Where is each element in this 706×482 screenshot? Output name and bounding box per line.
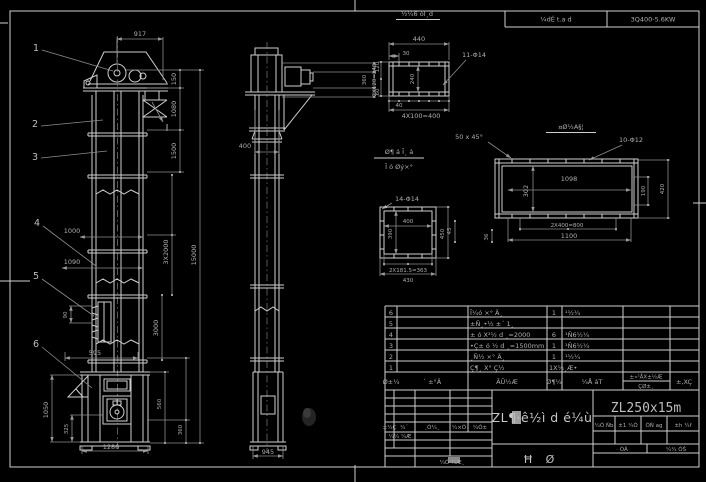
title-block: ±¼Ç ¼´ ¸Ò¼¸ ¼×Ó ¼Ó± ¼¼ ¼Æ ¼Ó ¼Æ¸ ZL¶·ê½ì…	[383, 390, 699, 467]
rev-h1: ±¼Ç	[383, 425, 397, 431]
row4-desc: ± ó X²½ d ¸=2000	[470, 331, 530, 339]
drawing-title: ZL¶·ê½ì d é¼ù	[492, 410, 593, 425]
dim-1000: 1000	[64, 227, 81, 235]
row6-material: ¹½¼	[565, 309, 581, 317]
row3-material: ¹Ñ6½¼	[565, 341, 590, 350]
dim-150: 150	[170, 73, 178, 85]
holes-10-12: 10-Φ12	[619, 136, 643, 144]
detail-channel-title: ½¼6 óĪ¸d	[401, 9, 433, 18]
screen-smudge	[302, 408, 316, 426]
dim-360-side: 360	[362, 74, 368, 85]
rev-h5: ¼Ó±	[473, 424, 488, 431]
front-view-dimensions: 917 150 1080 1500 15000 3X2000 3000 1000…	[42, 30, 204, 454]
dim-1080: 1080	[170, 101, 178, 118]
dim-945: 945	[262, 448, 274, 456]
header-material: ¼Å áT	[582, 377, 603, 386]
header-qty: Ø¶¼	[546, 378, 562, 386]
rev-h2: ¼´	[400, 425, 408, 431]
dim-2x120: 2X120=240	[372, 63, 378, 96]
rev-h3: ¸Ò¼¸	[424, 424, 439, 431]
header-weight-bottom: ÇØ±¸	[638, 383, 654, 390]
detail-plate-title: ¤Ø½A§¦	[558, 123, 583, 131]
inlet-note-line1: Ø¶ á Ī¸ á	[385, 147, 414, 156]
dim-430: 430	[403, 278, 414, 284]
info-c2: ±1 ¼Ò	[618, 422, 638, 429]
row4-material: ¹Ñ6½¼	[565, 330, 590, 339]
info-c4: ±h ¼f	[674, 423, 692, 429]
dim-40: 40	[396, 103, 403, 109]
dim-1090: 1090	[64, 258, 81, 266]
rev-row2: ¼Ó ¼Æ¸	[440, 459, 465, 466]
header-note-col: ±,XÇ	[676, 378, 692, 386]
row4-no: 4	[389, 331, 393, 339]
dim-440: 440	[413, 35, 425, 43]
dim-595: 595	[89, 349, 101, 357]
info-c1: ¼Ó Ñb	[594, 422, 614, 429]
dim-325: 325	[64, 423, 70, 434]
dim-190: 190	[641, 185, 647, 196]
dim-302: 302	[522, 185, 530, 197]
dim-1100: 1100	[561, 232, 578, 240]
front-view-elevator: I	[68, 36, 168, 452]
row6-qty: 1	[552, 309, 556, 317]
row5-desc: ±Ñ¸•½ ±´ 1¸	[470, 319, 514, 328]
dim-1050: 1050	[42, 402, 50, 419]
holes-14-14: 14-Φ14	[395, 195, 419, 203]
dim-400: 400	[239, 142, 251, 150]
detail-channel-flange: ½¼6 óĪ¸d 440 30 2X120=240 240 11-Φ14 40 …	[372, 9, 486, 120]
row4-qty: 6	[552, 331, 556, 339]
dim-450: 450	[440, 228, 446, 239]
inlet-note-line2: Ī ó Øý×°	[385, 162, 413, 171]
info-c3: ÓÑ ag	[645, 422, 662, 429]
dim-360: 360	[178, 424, 184, 435]
dim-fl-400: 400	[403, 219, 414, 225]
row1-no: 1	[389, 364, 393, 372]
balloon-callouts: 1 2 3 4 5 6	[32, 43, 113, 388]
row2-no: 2	[389, 353, 393, 361]
dim-36: 36	[484, 233, 490, 240]
dim-240: 240	[410, 73, 416, 84]
side-view-elevator	[245, 42, 315, 452]
balloon-5: 5	[33, 271, 39, 282]
balloon-2: 2	[32, 119, 38, 130]
top-header-strip: ¼dÊ t.a d 3Q400-5.6KW	[505, 11, 699, 27]
dim-3000: 3000	[152, 320, 160, 337]
dim-90: 90	[63, 311, 69, 318]
model-number: ZL250x15m	[611, 401, 682, 416]
dim-390: 390	[388, 228, 394, 239]
dim-4x100: 4X100=400	[402, 112, 441, 120]
row3-desc: •Ç± ó ½ d ¸=1500mm	[470, 342, 544, 350]
header-desc: ÃÛ½Æ	[496, 377, 518, 386]
row1-desc: Ç¶¸ X° Ç½	[470, 364, 505, 372]
cad-drawing-sheet: ¼dÊ t.a d 3Q400-5.6KW I	[0, 0, 706, 482]
row3-qty: 1	[552, 342, 556, 350]
header-note: ¼dÊ t.a d	[540, 15, 571, 24]
detail-square-flange: 14-Φ14 400 390 450 2X181.5=363 430	[380, 195, 450, 284]
dim-30: 30	[403, 51, 410, 57]
row5-no: 5	[389, 320, 393, 328]
balloon-6: 6	[33, 339, 39, 350]
section-mark: I	[166, 123, 169, 134]
dim-1286: 1286	[103, 443, 120, 451]
row6-desc: Ī¼ó ×° Ä¸	[470, 308, 503, 317]
row6-no: 6	[389, 309, 393, 317]
dim-15000: 15000	[190, 245, 198, 266]
balloon-3: 3	[32, 152, 38, 163]
dim-420: 420	[660, 183, 666, 194]
cad-canvas: ¼dÊ t.a d 3Q400-5.6KW I	[0, 0, 706, 482]
dim-917: 917	[134, 30, 146, 38]
row3-no: 3	[389, 342, 393, 350]
dim-1098: 1098	[561, 175, 578, 183]
info-s2: ¼¼ ÓŠ	[666, 446, 687, 453]
balloon-1: 1	[33, 43, 39, 54]
row2-desc: ¸Ñ½ ×° Ä¸	[470, 352, 505, 361]
stamp-right: Ø	[546, 453, 555, 466]
rev-row1: ¼¼ ¼Æ	[388, 434, 411, 440]
side-view-dimensions: 400 945 360 120 60	[239, 61, 381, 459]
rev-h4: ¼×Ó	[452, 424, 467, 431]
chamfer-note: 50 x 45°	[455, 133, 483, 141]
dim-1500: 1500	[170, 143, 178, 160]
balloon-4: 4	[34, 218, 40, 229]
stamp-left: Ħ	[523, 453, 533, 466]
dim-2x181: 2X181.5=363	[389, 268, 428, 274]
row2-qty: 1	[552, 353, 556, 361]
info-s1: · ÓÁ	[616, 446, 628, 453]
detail-casing-plate: ¤Ø½A§¦ 50 x 45° 10-Φ12 1098 302 190 420 …	[447, 123, 670, 243]
header-name: ´ ±°Ä	[423, 377, 442, 386]
holes-11-14: 11-Φ14	[462, 51, 486, 59]
header-spec: 3Q400-5.6KW	[631, 16, 676, 24]
dim-2x400: 2X400=800	[551, 223, 584, 229]
row2-material: ¹½¼	[565, 353, 581, 361]
inlet-note: Ø¶ á Ī¸ á Ī ó Øý×°	[374, 147, 424, 171]
row1-qty: 1X¼¸Æ•	[549, 364, 577, 372]
header-no: Ø±¼	[383, 378, 401, 386]
parts-table: 6 Ī¼ó ×° Ä¸ 1 ¹½¼ 5 ±Ñ¸•½ ±´ 1¸ 4 ± ó X²…	[383, 306, 699, 390]
dim-3x2000: 3X2000	[162, 239, 170, 264]
header-weight-top: ±«²ÅX±½Æ	[629, 374, 662, 381]
dim-560: 560	[157, 398, 163, 409]
